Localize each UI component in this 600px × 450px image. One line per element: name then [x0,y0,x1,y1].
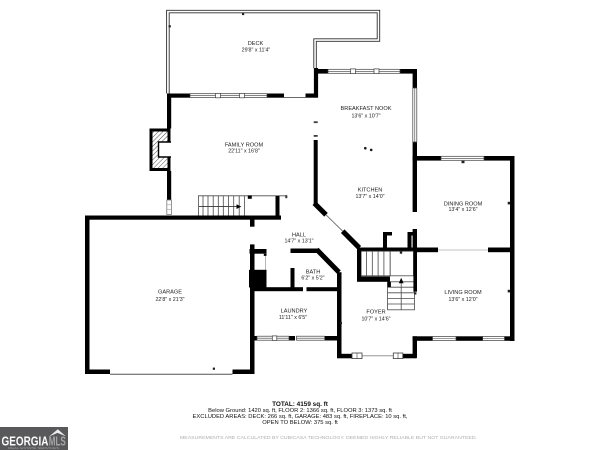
svg-text:HALL: HALL [292,232,306,238]
svg-text:13'4" x 12'6": 13'4" x 12'6" [448,207,477,213]
svg-text:13'6" x 12'0": 13'6" x 12'0" [448,297,477,303]
svg-text:13'7" x 14'0": 13'7" x 14'0" [355,194,384,200]
svg-text:29'8" x 11'4": 29'8" x 11'4" [242,47,271,53]
svg-text:LAUNDRY: LAUNDRY [281,308,308,314]
svg-text:BREAKFAST NOOK: BREAKFAST NOOK [341,106,392,112]
svg-text:FAMILY ROOM: FAMILY ROOM [225,142,264,148]
svg-text:GARAGE: GARAGE [158,289,182,295]
svg-text:10'7" x 14'6": 10'7" x 14'6" [361,316,390,322]
svg-text:OPEN TO BELOW: 375 sq. ft: OPEN TO BELOW: 375 sq. ft [262,420,338,426]
svg-text:BATH: BATH [306,269,321,275]
svg-text:MEASUREMENTS ARE CALCULATED BY: MEASUREMENTS ARE CALCULATED BY CUBICASA … [180,435,477,440]
svg-text:6'2" x 5'2": 6'2" x 5'2" [301,276,324,282]
svg-text:13'6" x 10'7": 13'6" x 10'7" [351,113,380,119]
svg-text:REAL ESTATE SERVICES: REAL ESTATE SERVICES [8,446,59,450]
svg-text:KITCHEN: KITCHEN [358,187,383,193]
svg-text:11'11" x 6'5": 11'11" x 6'5" [279,315,307,321]
svg-text:FOYER: FOYER [366,309,385,315]
svg-text:LIVING ROOM: LIVING ROOM [444,290,482,296]
svg-text:14'7" x 13'1": 14'7" x 13'1" [284,239,313,245]
svg-text:22'8" x 21'3": 22'8" x 21'3" [155,297,184,303]
svg-text:22'11" x 16'8": 22'11" x 16'8" [228,149,260,155]
svg-text:DECK: DECK [248,41,264,47]
svg-text:TOTAL: 4159 sq. ft: TOTAL: 4159 sq. ft [272,401,329,408]
